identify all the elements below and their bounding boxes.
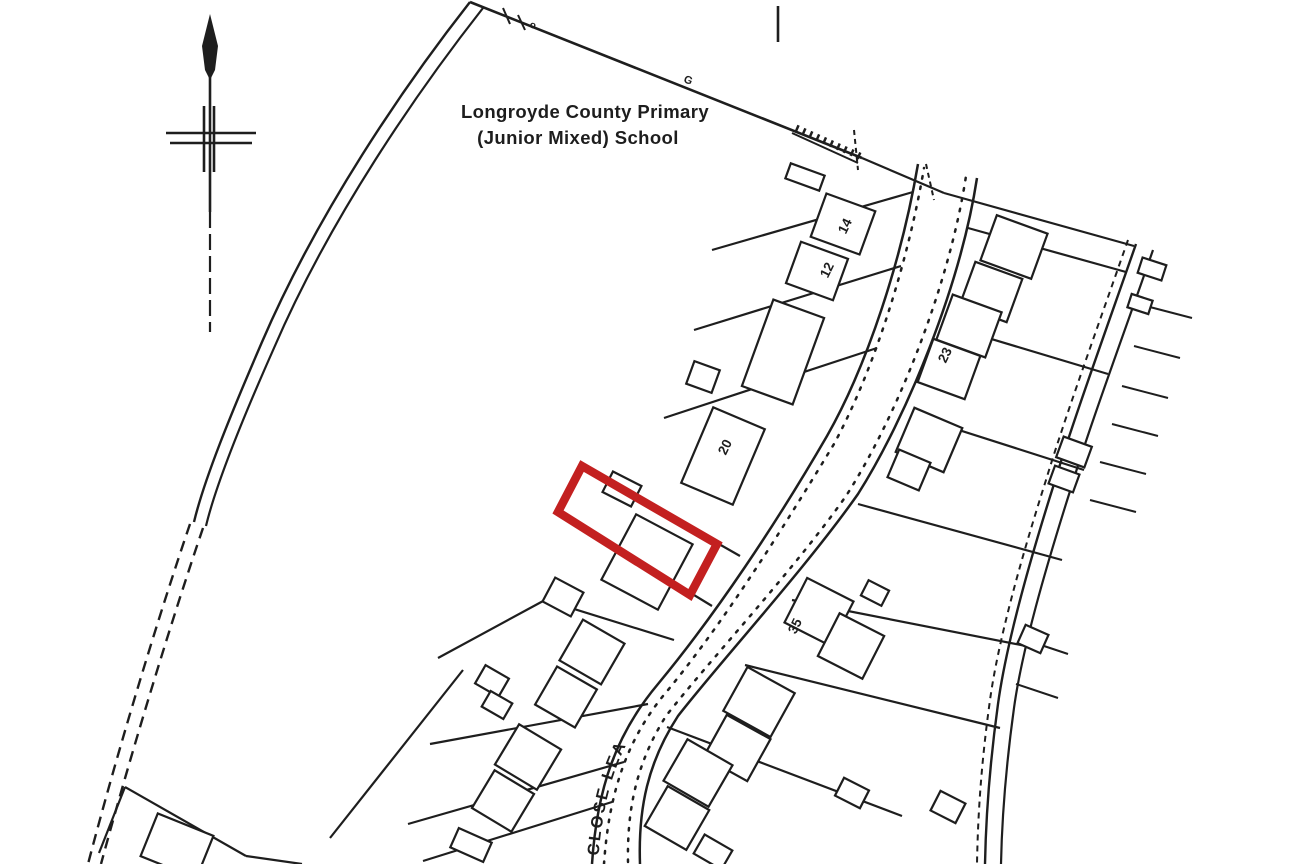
plot-boundary — [858, 504, 1062, 560]
building-outline — [1138, 258, 1167, 281]
plot-tick — [1016, 684, 1058, 698]
track-dashed — [88, 524, 190, 864]
plot-boundary — [246, 856, 302, 864]
plot-boundary — [99, 787, 125, 853]
building-outline — [694, 834, 733, 864]
plot-tick — [1134, 346, 1180, 358]
site-location-plan: Longroyde County Primary (Junior Mixed) … — [0, 0, 1300, 864]
dashed-stub — [854, 130, 858, 170]
building-outline — [601, 514, 692, 609]
building-outline — [686, 361, 720, 393]
building-outline — [742, 300, 824, 405]
plot-boundary — [712, 192, 913, 250]
site-plan-svg: Longroyde County Primary (Junior Mixed) … — [0, 0, 1300, 864]
building-outline — [785, 163, 824, 190]
building-outline — [931, 791, 966, 823]
school-name-line2: (Junior Mixed) School — [477, 127, 679, 148]
north-arrow — [166, 14, 256, 332]
street-name-textpath: CLOSE LEA — [585, 737, 631, 856]
building-outline — [681, 407, 765, 504]
dashed-stub — [926, 164, 934, 200]
plot-tick — [1146, 306, 1192, 318]
building-outline — [835, 778, 869, 809]
boundary-mark: G — [682, 74, 694, 88]
school-boundary-inner — [206, 8, 483, 526]
plot-tick — [1112, 424, 1158, 436]
building-outline — [786, 242, 848, 300]
plot-tick — [1100, 462, 1146, 474]
road-kerb-dotted — [604, 168, 924, 864]
labels-layer: Longroyde County Primary (Junior Mixed) … — [461, 101, 709, 856]
building-outline — [482, 691, 513, 719]
plot-tick — [1122, 386, 1168, 398]
boundary-mark: o — [528, 19, 538, 31]
buildings-layer — [141, 163, 1167, 864]
north-arrow-head — [202, 14, 218, 80]
building-outline — [450, 828, 491, 862]
building-outline — [1018, 625, 1049, 653]
footpath-edge — [1001, 250, 1153, 864]
school-name-line1: Longroyde County Primary — [461, 101, 709, 122]
plot-tick — [1090, 500, 1136, 512]
street-name: CLOSE LEA — [585, 737, 631, 856]
building-outline — [141, 813, 214, 864]
school-fence-ext — [862, 158, 944, 193]
building-outline — [861, 580, 889, 606]
track-dashed — [101, 528, 203, 864]
